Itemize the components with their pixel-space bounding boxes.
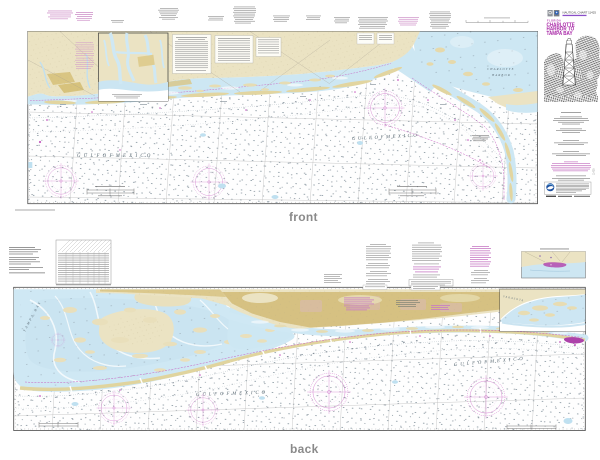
svg-text:HARBOR: HARBOR	[491, 73, 511, 77]
svg-text:NAUTICAL CHART 11425: NAUTICAL CHART 11425	[563, 11, 597, 15]
svg-text:FLORIDA: FLORIDA	[547, 19, 561, 23]
svg-text:TAMPA BAY: TAMPA BAY	[547, 31, 574, 37]
svg-text:11425: 11425	[593, 168, 596, 175]
svg-text:G U L F O F M E X I C O: G U L F O F M E X I C O	[77, 154, 151, 159]
svg-text:CHARLOTTE: CHARLOTTE	[487, 67, 515, 71]
